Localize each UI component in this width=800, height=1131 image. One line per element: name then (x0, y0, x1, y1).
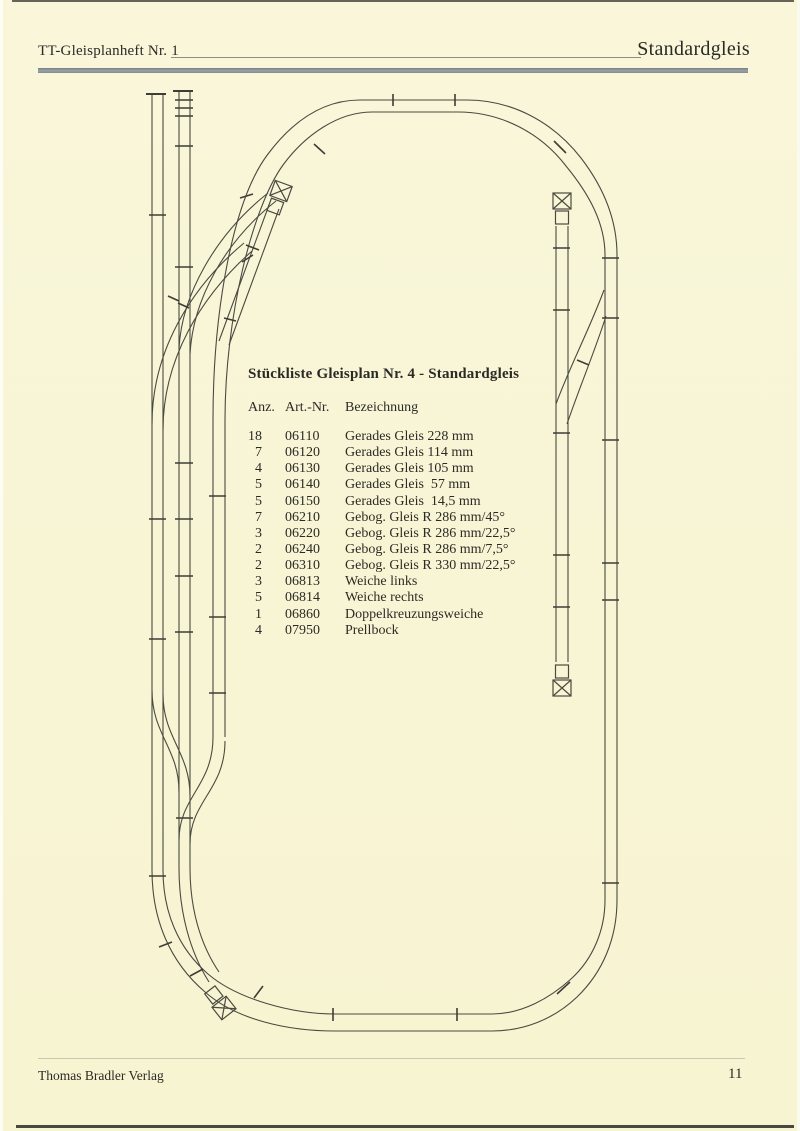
buffer-stop-right-siding-top (553, 193, 571, 224)
description-cell: Gerades Gleis 105 mm (345, 461, 474, 477)
parts-row: 206240Gebog. Gleis R 286 mm/7,5° (238, 542, 515, 558)
description-cell: Weiche links (345, 574, 417, 590)
qty-cell: 2 (238, 542, 262, 558)
yard-crossover-track1-track2 (152, 690, 190, 796)
description-cell: Weiche rechts (345, 590, 424, 606)
publisher-name: Thomas Bradler Verlag (38, 1068, 164, 1084)
parts-row: 406130Gerades Gleis 105 mm (238, 461, 515, 477)
yard-track-2-corner-to-buffer (179, 868, 219, 982)
parts-list-title: Stückliste Gleisplan Nr. 4 - Standardgle… (248, 366, 519, 383)
qty-cell: 5 (238, 494, 262, 510)
buffer-stop-right-siding-bottom (553, 665, 571, 696)
description-cell: Gerades Gleis 228 mm (345, 429, 474, 445)
article-no-cell: 06310 (285, 558, 345, 574)
description-cell: Gerades Gleis 114 mm (345, 445, 473, 461)
article-no-cell: 06220 (285, 526, 345, 542)
parts-row: 407950Prellbock (238, 623, 515, 639)
yard-track-2 (179, 91, 190, 868)
page-number: 11 (728, 1066, 742, 1083)
article-no-cell: 06860 (285, 607, 345, 623)
qty-cell: 3 (238, 526, 262, 542)
qty-cell: 5 (238, 477, 262, 493)
qty-cell: 18 (238, 429, 262, 445)
description-cell: Doppelkreuzungsweiche (345, 607, 483, 623)
qty-cell: 4 (238, 623, 262, 639)
article-no-cell: 07950 (285, 623, 345, 639)
article-no-cell: 06110 (285, 429, 345, 445)
scanned-page: TT-Gleisplanheft Nr. 1 Standardgleis (0, 0, 800, 1131)
throat-branch-to-track2 (179, 193, 276, 354)
parts-row: 506140Gerades Gleis 57 mm (238, 477, 515, 493)
parts-row: 506150Gerades Gleis 14,5 mm (238, 494, 515, 510)
description-cell: Gebog. Gleis R 286 mm/7,5° (345, 542, 508, 558)
column-header-anz: Anz. (248, 400, 285, 416)
parts-list-rows: 1806110Gerades Gleis 228 mm 706120Gerade… (238, 429, 515, 639)
parts-row: 306813Weiche links (238, 574, 515, 590)
joint-ticks-track3 (209, 496, 226, 693)
article-no-cell: 06130 (285, 461, 345, 477)
parts-row: 506814Weiche rechts (238, 590, 515, 606)
article-no-cell: 06120 (285, 445, 345, 461)
description-cell: Gebog. Gleis R 330 mm/22,5° (345, 558, 515, 574)
parts-list-column-headers: Anz.Art.-Nr.Bezeichnung (248, 400, 418, 416)
parts-row: 106860Doppelkreuzungsweiche (238, 607, 515, 623)
description-cell: Gerades Gleis 14,5 mm (345, 494, 481, 510)
parts-row: 706120Gerades Gleis 114 mm (238, 445, 515, 461)
right-siding-rails (556, 226, 568, 662)
track-end-caps (146, 91, 193, 94)
qty-cell: 7 (238, 445, 262, 461)
qty-cell: 1 (238, 607, 262, 623)
column-header-art: Art.-Nr. (285, 400, 345, 416)
description-cell: Gebog. Gleis R 286 mm/22,5° (345, 526, 515, 542)
parts-row: 206310Gebog. Gleis R 330 mm/22,5° (238, 558, 515, 574)
column-header-bez: Bezeichnung (345, 400, 418, 415)
parts-row: 1806110Gerades Gleis 228 mm (238, 429, 515, 445)
article-no-cell: 06814 (285, 590, 345, 606)
description-cell: Prellbock (345, 623, 399, 639)
qty-cell: 5 (238, 590, 262, 606)
description-cell: Gerades Gleis 57 mm (345, 477, 470, 493)
article-no-cell: 06210 (285, 510, 345, 526)
yard-track-3 (213, 420, 225, 737)
qty-cell: 7 (238, 510, 262, 526)
station-throat-curves (152, 193, 279, 430)
qty-cell: 4 (238, 461, 262, 477)
parts-row: 706210Gebog. Gleis R 286 mm/45° (238, 510, 515, 526)
footer-rule (38, 1058, 745, 1059)
article-no-cell: 06140 (285, 477, 345, 493)
article-no-cell: 06813 (285, 574, 345, 590)
yard-merge-track3-to-track2 (179, 737, 225, 844)
qty-cell: 3 (238, 574, 262, 590)
qty-cell: 2 (238, 558, 262, 574)
right-siding (556, 226, 606, 662)
parts-row: 306220Gebog. Gleis R 286 mm/22,5° (238, 526, 515, 542)
article-no-cell: 06150 (285, 494, 345, 510)
article-no-cell: 06240 (285, 542, 345, 558)
description-cell: Gebog. Gleis R 286 mm/45° (345, 510, 505, 526)
